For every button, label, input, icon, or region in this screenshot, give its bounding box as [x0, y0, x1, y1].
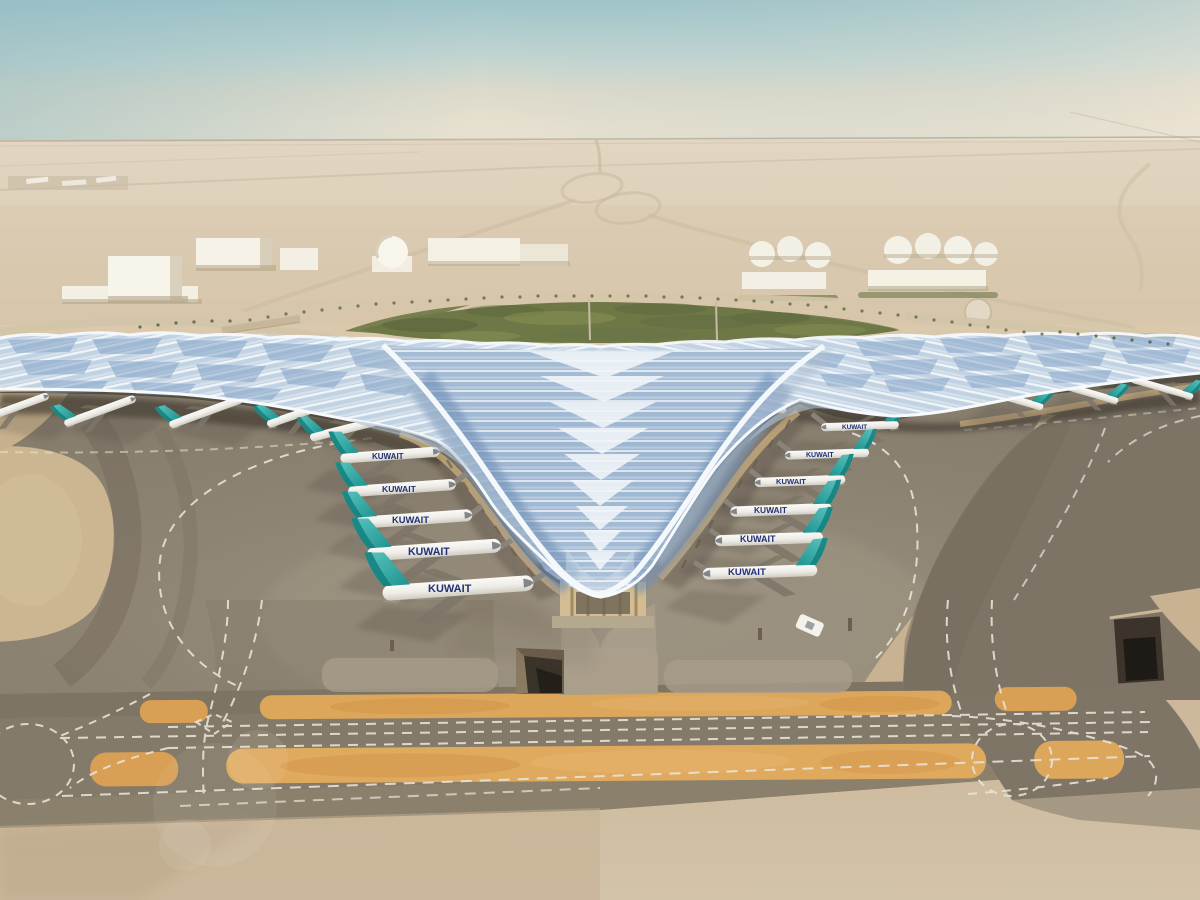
svg-text:KUWAIT: KUWAIT [776, 477, 806, 486]
svg-text:KUWAIT: KUWAIT [392, 514, 429, 525]
svg-text:KUWAIT: KUWAIT [842, 424, 867, 431]
svg-text:KUWAIT: KUWAIT [372, 452, 404, 461]
svg-text:KUWAIT: KUWAIT [382, 484, 417, 494]
svg-text:KUWAIT: KUWAIT [806, 452, 834, 459]
svg-text:KUWAIT: KUWAIT [408, 546, 450, 558]
svg-text:KUWAIT: KUWAIT [728, 567, 766, 578]
svg-text:KUWAIT: KUWAIT [428, 583, 472, 595]
svg-text:KUWAIT: KUWAIT [740, 534, 776, 544]
svg-text:KUWAIT: KUWAIT [754, 505, 788, 515]
